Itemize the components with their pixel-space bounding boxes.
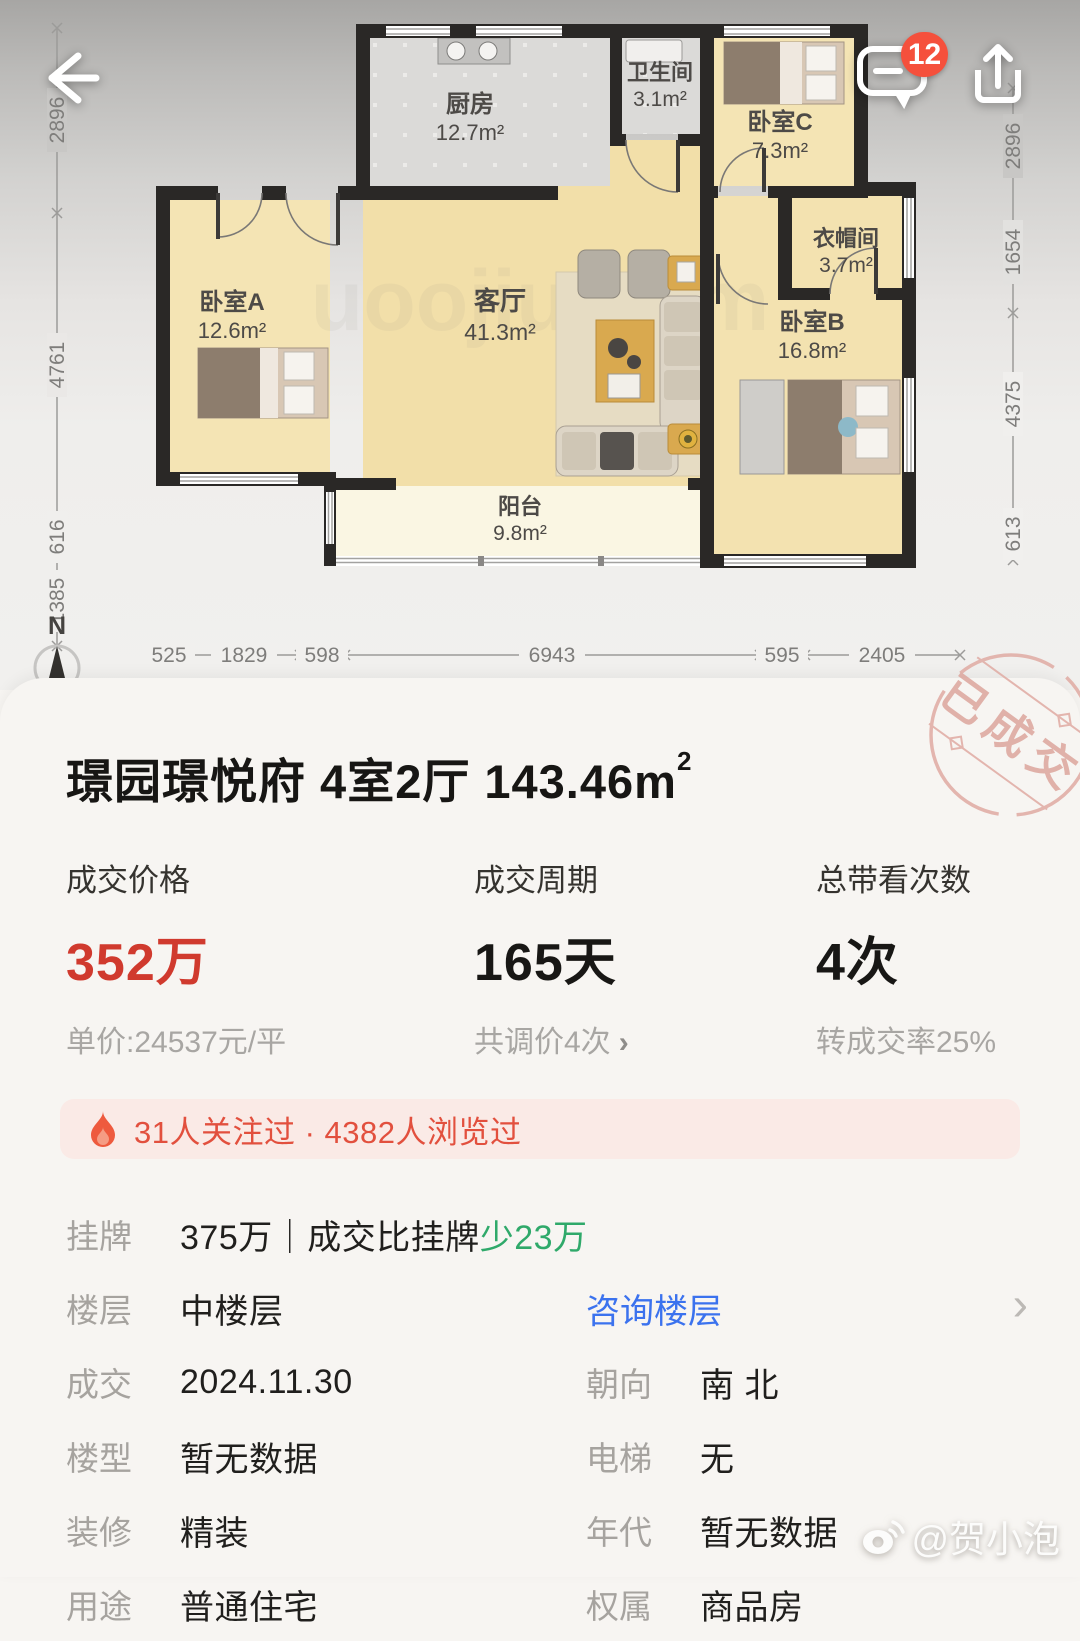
popularity-text: 31人关注过 · 4382人浏览过 — [134, 1107, 522, 1152]
weibo-icon — [859, 1515, 905, 1557]
unit-price: 单价:24537元/平 — [66, 1017, 474, 1061]
room-bath-name: 卫生间 — [627, 60, 693, 85]
stat-deal-cycle: 成交周期 165天 共调价4次› — [474, 855, 816, 1061]
svg-text:613: 613 — [1002, 516, 1025, 551]
svg-text:2405: 2405 — [859, 644, 906, 667]
room-bedA-area: 12.6m² — [198, 318, 266, 343]
row-deal-date: 成交 2024.11.30 朝向 南 北 — [66, 1345, 1014, 1419]
svg-text:2896: 2896 — [1002, 123, 1025, 170]
room-cloak-area: 3.7m² — [819, 254, 873, 277]
page-title: 璟园璟悦府 4室2厅 143.46m2 — [66, 732, 920, 811]
share-button[interactable] — [966, 42, 1030, 108]
svg-text:6943: 6943 — [529, 644, 576, 667]
svg-text:525: 525 — [151, 644, 186, 667]
room-balcony-area: 9.8m² — [493, 522, 547, 545]
back-arrow-icon — [40, 46, 104, 110]
svg-text:595: 595 — [764, 644, 799, 667]
room-kitchen-name: 厨房 — [446, 90, 494, 118]
deal-price-value: 352万 — [66, 920, 474, 995]
chevron-right-icon: › — [619, 1026, 629, 1059]
row-building-type: 楼型 暂无数据 电梯 无 — [66, 1419, 1014, 1493]
price-adjustments-link[interactable]: 共调价4次› — [474, 1017, 816, 1061]
room-living-area: 41.3m² — [464, 319, 536, 345]
flame-icon — [88, 1110, 118, 1148]
listing-price: 375万｜成交比挂牌 — [180, 1210, 480, 1259]
deal-info-card: 璟园璟悦府 4室2厅 143.46m2 成交价格 352万 单价:24537元/… — [0, 678, 1080, 1577]
back-button[interactable] — [40, 46, 104, 110]
svg-text:1654: 1654 — [1002, 228, 1025, 275]
row-listing: 挂牌 375万｜成交比挂牌 少23万 — [66, 1197, 1014, 1271]
svg-text:598: 598 — [304, 644, 339, 667]
share-icon — [966, 42, 1030, 108]
showings-value: 4次 — [816, 920, 1080, 995]
deal-cycle-value: 165天 — [474, 920, 816, 995]
orientation: 南 北 — [700, 1358, 779, 1407]
weibo-handle: @贺小泡 — [911, 1509, 1060, 1563]
row-floor[interactable]: 楼层 中楼层 咨询楼层 › — [66, 1271, 1014, 1345]
deal-date: 2024.11.30 — [180, 1363, 353, 1402]
svg-text:N: N — [48, 612, 66, 640]
conversion-rate: 转成交率25% — [816, 1017, 1080, 1061]
consult-floor-link[interactable]: 咨询楼层 — [586, 1284, 722, 1333]
detail-rows: 挂牌 375万｜成交比挂牌 少23万 楼层 中楼层 咨询楼层 › 成交 2024… — [66, 1197, 1014, 1641]
chevron-right-icon: › — [1013, 1277, 1028, 1331]
weibo-watermark: @贺小泡 — [859, 1509, 1060, 1563]
deal-stats: 成交价格 352万 单价:24537元/平 成交周期 165天 共调价4次› 总… — [0, 855, 1080, 1061]
room-living-name: 客厅 — [474, 286, 526, 316]
popularity-banner: 31人关注过 · 4382人浏览过 — [60, 1099, 1020, 1159]
room-bedB-area: 16.8m² — [778, 338, 846, 363]
price-reduction: 少23万 — [480, 1210, 588, 1259]
room-kitchen-area: 12.7m² — [436, 120, 504, 145]
room-bedB-name: 卧室B — [779, 308, 844, 336]
svg-text:1829: 1829 — [221, 644, 268, 667]
row-usage: 用途 普通住宅 权属 商品房 — [66, 1567, 1014, 1641]
room-bath-area: 3.1m² — [633, 88, 687, 111]
room-cloak-name: 衣帽间 — [813, 226, 879, 251]
stat-showings: 总带看次数 4次 转成交率25% — [816, 855, 1080, 1061]
room-bedC-area: 7.3m² — [752, 138, 808, 163]
room-balcony-name: 阳台 — [498, 494, 542, 519]
svg-text:616: 616 — [46, 519, 69, 554]
comment-count-badge: 12 — [901, 32, 948, 77]
svg-text:4761: 4761 — [46, 342, 69, 389]
stat-deal-price: 成交价格 352万 单价:24537元/平 — [66, 855, 474, 1061]
room-bedC-name: 卧室C — [747, 108, 812, 136]
room-bedA-name: 卧室A — [199, 288, 264, 316]
svg-text:4375: 4375 — [1002, 381, 1025, 428]
floorplan-section[interactable]: uoojiu.com — [0, 0, 1080, 690]
